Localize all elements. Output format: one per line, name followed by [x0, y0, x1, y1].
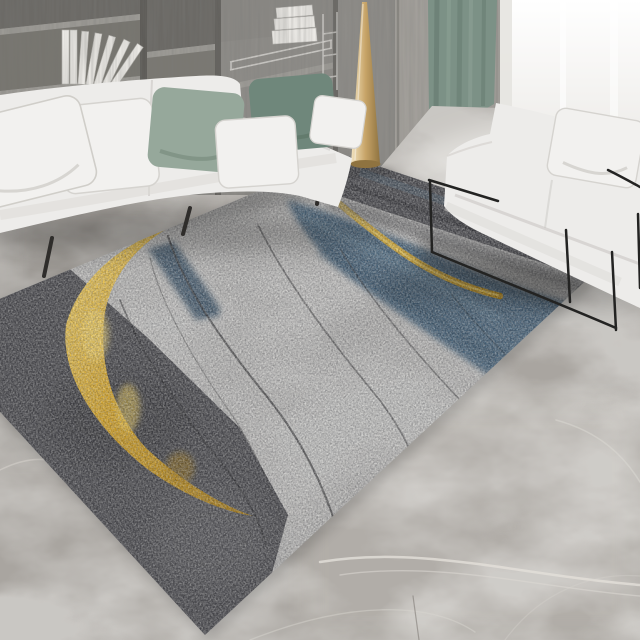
curtain-fold — [448, 0, 449, 116]
curtain-fold — [483, 0, 484, 106]
pillow-white-mid — [215, 115, 300, 188]
pillow-white-small — [309, 95, 367, 150]
living-room-photo — [0, 0, 640, 640]
cone-base — [351, 160, 381, 168]
pillow — [215, 115, 300, 188]
curtain-fold — [470, 0, 471, 110]
curtain-fold — [459, 0, 460, 110]
curtain-fold — [436, 0, 437, 114]
pillow — [309, 95, 367, 150]
left-sofa — [0, 72, 380, 276]
green-curtain — [428, 0, 497, 119]
